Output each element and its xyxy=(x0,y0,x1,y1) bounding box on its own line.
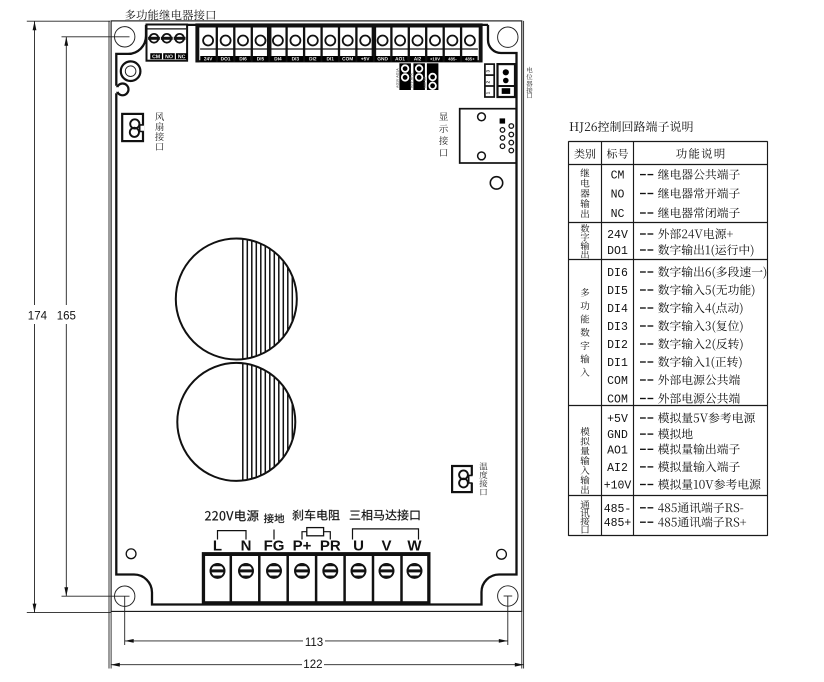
svg-text:AI2: AI2 xyxy=(607,462,628,475)
svg-text:DI6: DI6 xyxy=(607,267,628,280)
svg-text:DI3: DI3 xyxy=(607,321,628,334)
svg-text:NO: NO xyxy=(611,189,625,202)
svg-text:PR: PR xyxy=(320,538,341,555)
svg-text:AO1: AO1 xyxy=(607,444,628,457)
svg-text:113: 113 xyxy=(305,637,323,649)
svg-text:COM: COM xyxy=(607,394,628,407)
svg-text:DI2: DI2 xyxy=(607,339,628,352)
svg-text:485+: 485+ xyxy=(604,517,632,530)
svg-text:DI4: DI4 xyxy=(607,303,628,316)
svg-text:122: 122 xyxy=(303,659,322,671)
svg-text:DI5: DI5 xyxy=(607,285,628,298)
svg-text:V: V xyxy=(381,538,391,555)
svg-text:P+: P+ xyxy=(293,538,312,555)
svg-text:GND: GND xyxy=(607,429,628,442)
svg-text:L: L xyxy=(213,538,222,555)
svg-text:NC: NC xyxy=(611,208,625,221)
svg-text:N: N xyxy=(241,538,252,555)
svg-text:W: W xyxy=(407,538,422,555)
svg-text:485-: 485- xyxy=(604,503,632,516)
svg-text:FG: FG xyxy=(264,538,285,555)
svg-text:+5V: +5V xyxy=(607,413,628,426)
svg-text:24V: 24V xyxy=(607,229,628,242)
svg-text:DI1: DI1 xyxy=(607,357,628,370)
svg-text:+10V: +10V xyxy=(604,480,632,493)
svg-text:COM: COM xyxy=(607,375,628,388)
svg-text:165: 165 xyxy=(57,311,76,323)
svg-text:DO1: DO1 xyxy=(607,245,628,258)
svg-text:174: 174 xyxy=(28,311,48,323)
svg-text:U: U xyxy=(353,538,364,555)
svg-text:CM: CM xyxy=(611,170,625,183)
